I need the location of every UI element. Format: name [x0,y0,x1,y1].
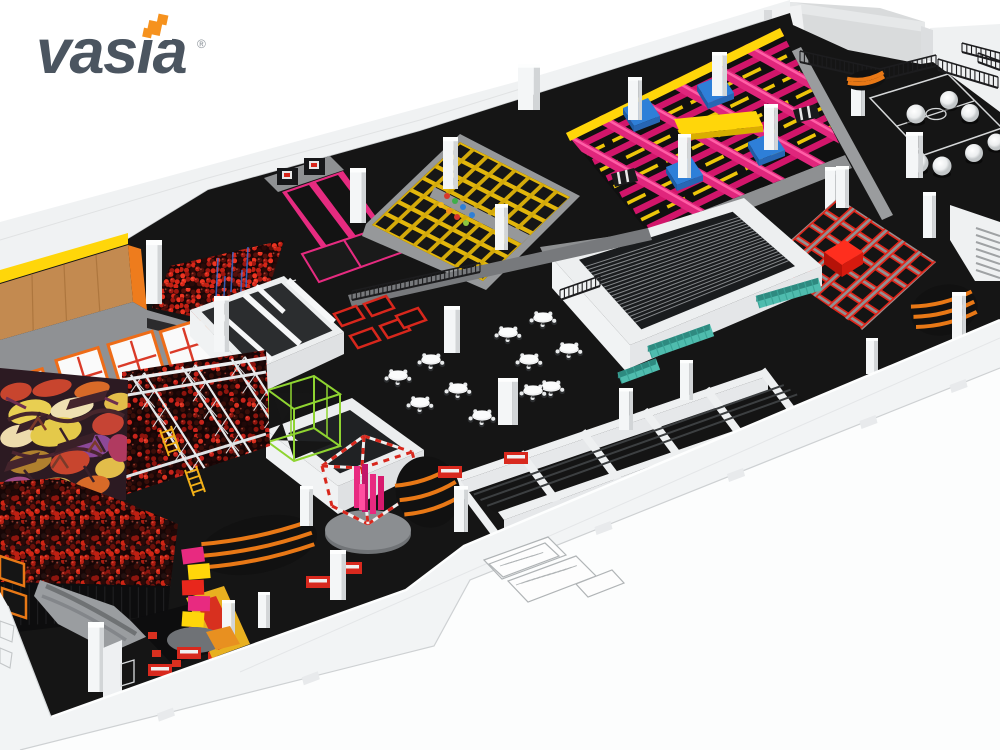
svg-text:®: ® [197,37,206,51]
